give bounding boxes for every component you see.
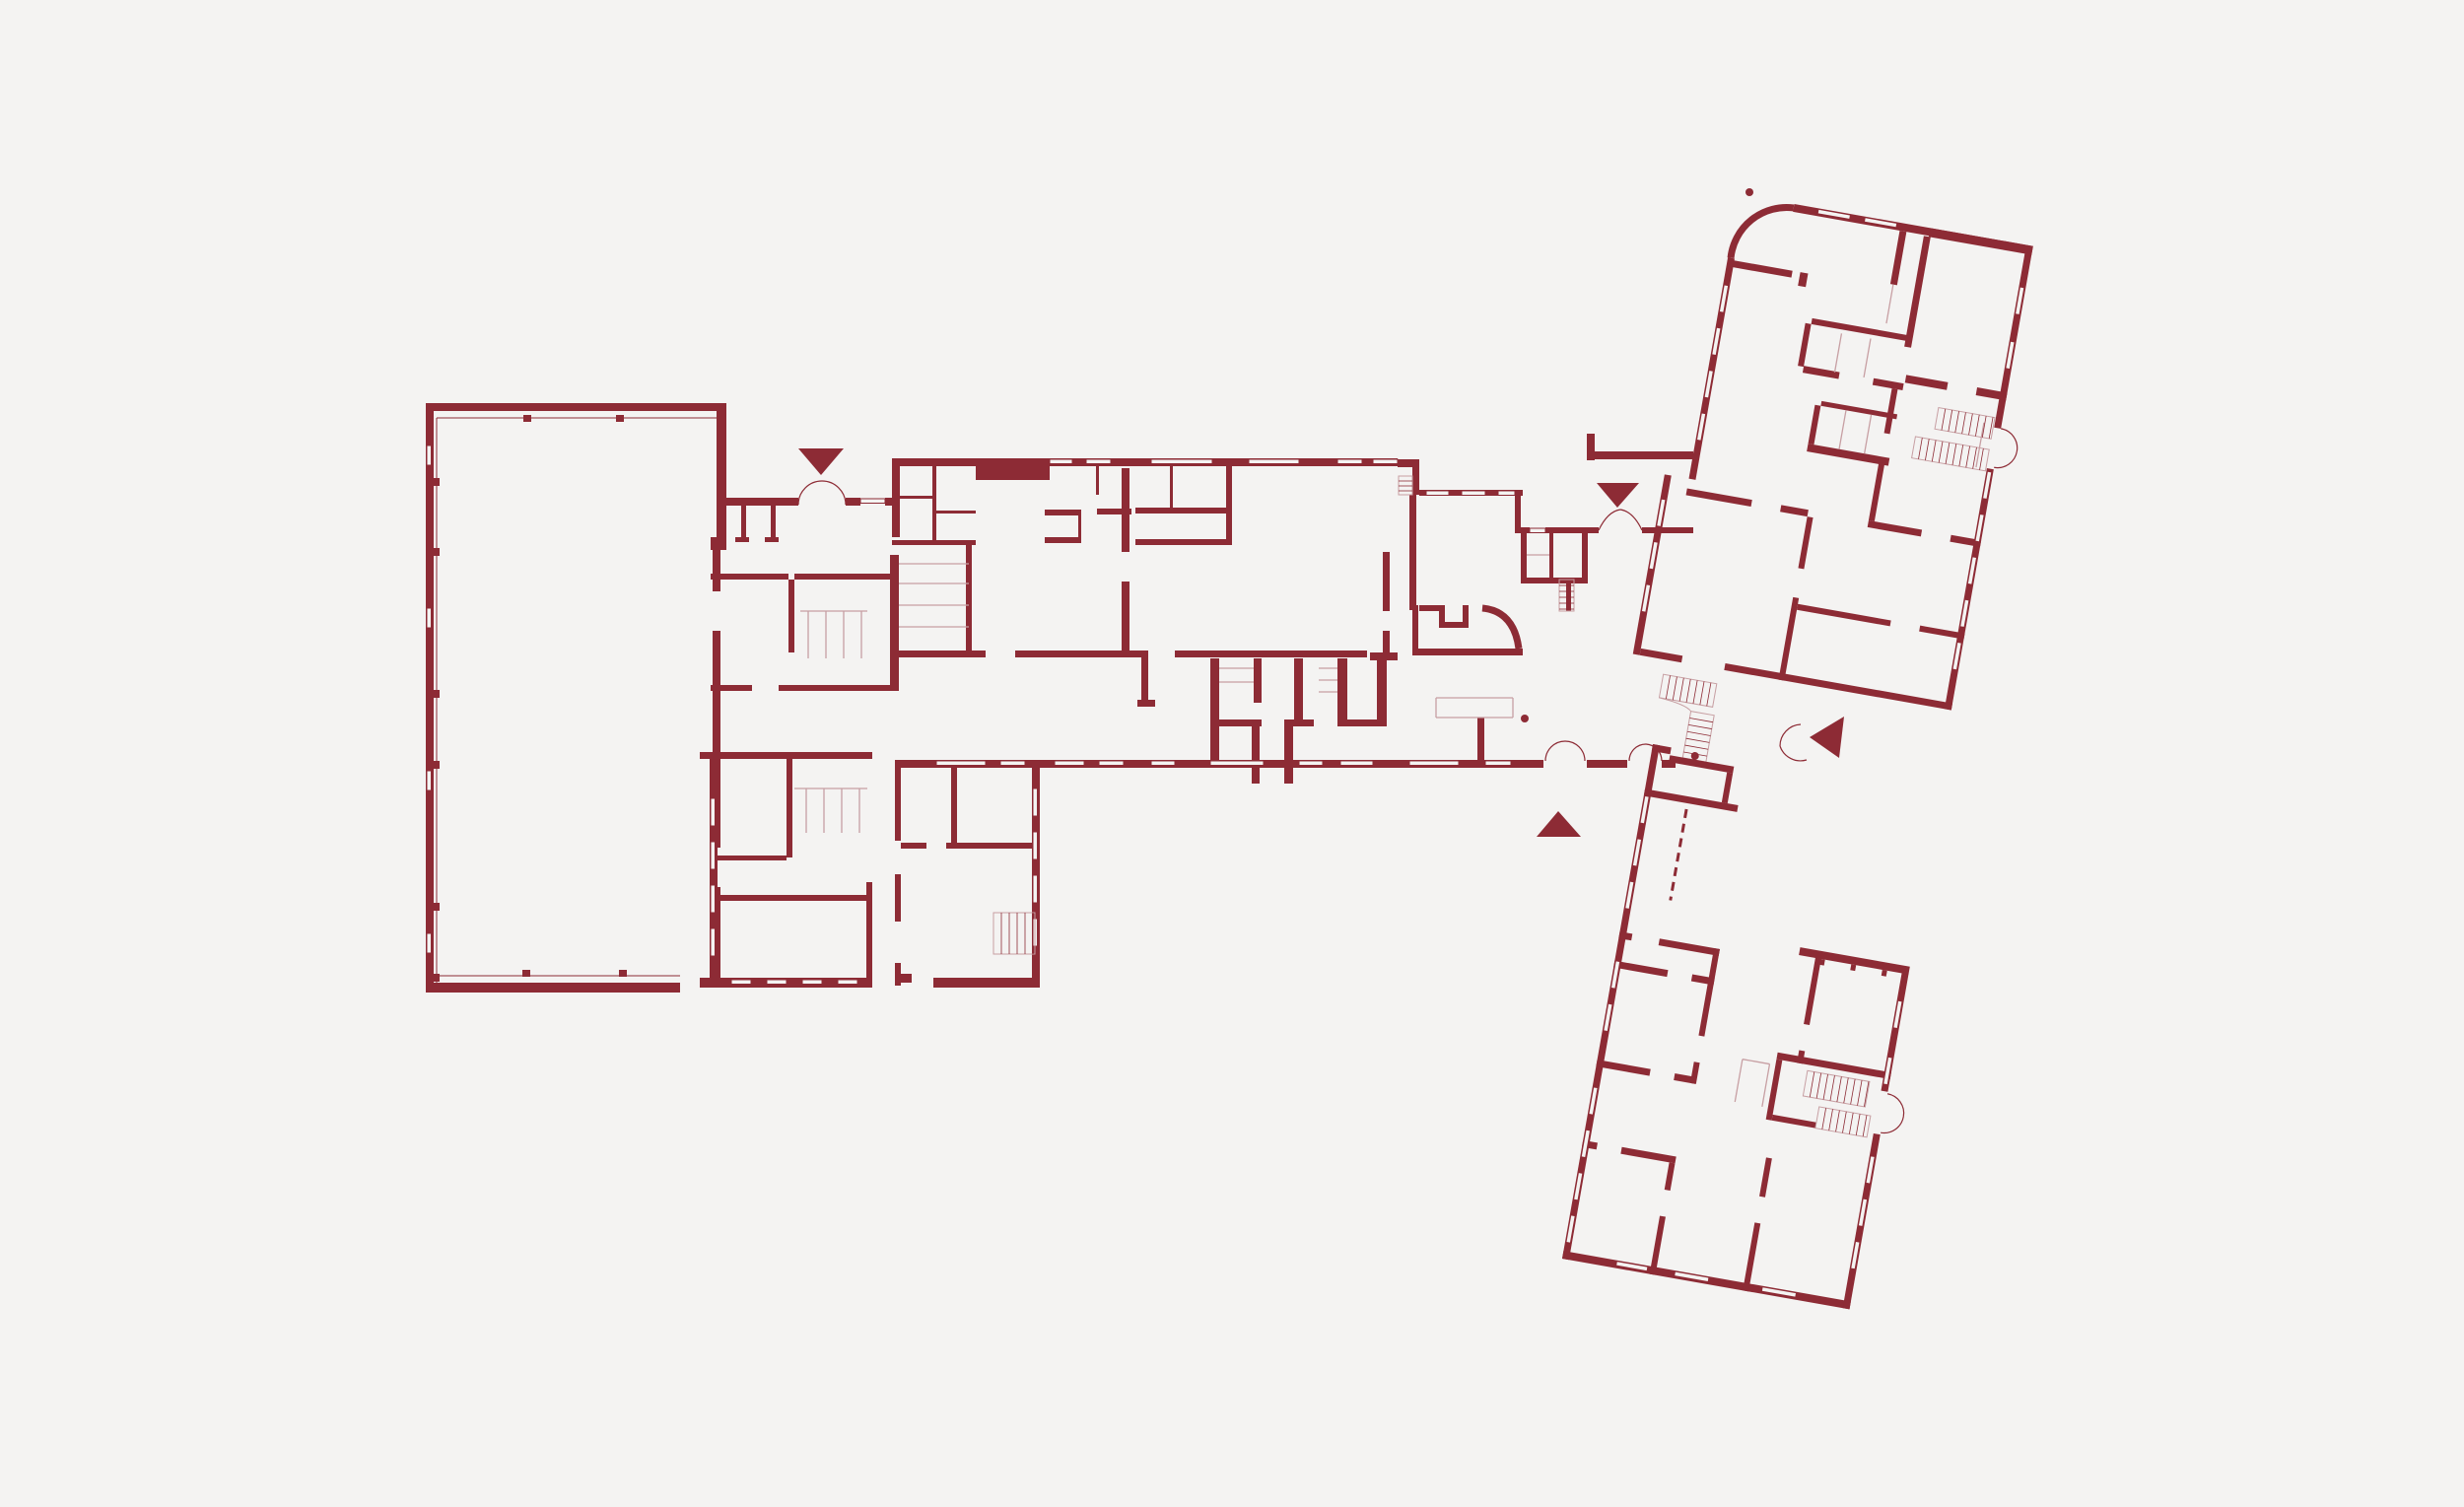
wall-segment xyxy=(1545,527,1599,533)
window-segment xyxy=(1498,491,1515,496)
window-segment xyxy=(1033,832,1038,859)
wall-segment xyxy=(1170,466,1173,508)
wall-segment xyxy=(895,974,912,983)
wall-segment xyxy=(1884,388,1898,434)
wall-segment xyxy=(1515,496,1521,533)
wall-segment xyxy=(1732,260,1792,277)
wall-segment xyxy=(426,983,680,993)
furniture-line xyxy=(1839,410,1846,448)
wall-segment xyxy=(1210,658,1219,760)
wall-segment xyxy=(1650,1162,1676,1274)
window-segment xyxy=(1249,459,1299,464)
window-segment xyxy=(711,928,716,956)
stair-hatch xyxy=(1399,476,1412,495)
furniture-line xyxy=(1865,415,1872,453)
wall-segment xyxy=(1118,509,1131,514)
door-swing xyxy=(1780,724,1801,746)
wall-segment xyxy=(711,685,752,691)
wall-segment xyxy=(717,403,726,498)
column-dot xyxy=(1521,715,1529,722)
door-opening xyxy=(1667,968,1693,983)
floor-plan-svg xyxy=(0,0,2464,1507)
door-swing xyxy=(822,481,846,505)
wall-segment xyxy=(711,574,788,580)
wall-segment xyxy=(1337,719,1387,726)
south-east-wing xyxy=(1562,744,1959,1313)
dashed-wall xyxy=(1671,809,1686,901)
stair-hatch xyxy=(1803,1070,1870,1107)
curved-wall xyxy=(1731,199,1794,267)
wall-segment xyxy=(966,545,972,651)
furniture-line xyxy=(1886,285,1893,323)
wall-segment xyxy=(1078,515,1081,537)
wall-segment xyxy=(1521,533,1527,583)
wall-segment xyxy=(1873,378,1904,390)
entrance-arrow xyxy=(798,448,844,475)
window-segment xyxy=(427,933,432,953)
wall-segment xyxy=(741,506,746,539)
wall-segment xyxy=(1642,527,1693,533)
wall-segment xyxy=(976,458,1050,480)
wall-segment xyxy=(1521,578,1588,583)
wall-segment xyxy=(936,511,976,514)
wall-segment xyxy=(1477,718,1484,761)
window-segment xyxy=(1340,761,1373,766)
door-opening xyxy=(1649,1067,1676,1082)
wall-segment xyxy=(1096,459,1099,495)
wall-segment xyxy=(1869,462,1884,521)
wall-segment xyxy=(1045,537,1081,543)
window-segment xyxy=(427,445,432,465)
wall-segment xyxy=(726,498,798,506)
entrance-arrow xyxy=(1537,811,1581,837)
window-segment xyxy=(731,980,751,985)
wall-segment xyxy=(1780,505,1809,516)
floor-plan-canvas xyxy=(0,0,2464,1507)
wall-segment xyxy=(765,537,779,542)
wall-segment xyxy=(1284,726,1293,784)
wall-segment xyxy=(1595,451,1693,459)
wall-segment xyxy=(1439,605,1445,628)
wall-segment xyxy=(866,882,872,988)
door-opening xyxy=(1681,653,1726,671)
window-segment xyxy=(1000,761,1025,766)
wall-segment xyxy=(1135,539,1232,545)
wall-segment xyxy=(892,651,986,657)
wall-segment xyxy=(1778,597,1799,681)
wall-segment xyxy=(1587,434,1595,460)
window-segment xyxy=(711,798,716,826)
window-segment xyxy=(767,980,787,985)
curved-wall xyxy=(1482,608,1519,649)
wall-segment xyxy=(787,759,792,857)
door-swing xyxy=(1780,746,1807,761)
north-east-wing xyxy=(1616,190,2052,806)
furniture-line xyxy=(1864,339,1871,377)
window-segment xyxy=(427,608,432,628)
wall-segment xyxy=(1135,508,1232,514)
wall-segment xyxy=(1045,510,1081,515)
window-segment xyxy=(427,771,432,790)
wall-segment xyxy=(715,895,872,901)
door-swing xyxy=(1599,510,1620,530)
window-segment xyxy=(936,761,986,766)
wall-segment xyxy=(1890,231,1906,285)
wall-segment xyxy=(1690,948,1720,1084)
door-swing xyxy=(1620,510,1642,530)
wall-segment xyxy=(1383,552,1390,611)
wall-segment xyxy=(1798,272,1808,287)
door-opening xyxy=(1631,931,1660,947)
wall-segment xyxy=(1137,700,1155,707)
wall-segment xyxy=(1809,405,1821,445)
wall-segment xyxy=(1686,489,1752,508)
wall-segment xyxy=(946,843,1038,849)
door-swing xyxy=(798,481,822,505)
wall-segment xyxy=(788,580,794,652)
window-segment xyxy=(1151,459,1212,464)
wall-segment xyxy=(1383,631,1390,655)
stair-hatch xyxy=(1935,408,1995,440)
wall-segment xyxy=(1412,649,1523,655)
wall-segment xyxy=(1549,533,1553,578)
window-segment xyxy=(1409,761,1459,766)
wall-segment xyxy=(1175,651,1367,657)
wall-segment xyxy=(1284,719,1314,726)
wall-segment xyxy=(1812,318,1912,342)
window-segment xyxy=(1462,491,1485,496)
wall-segment xyxy=(1743,1157,1772,1291)
wall-segment xyxy=(846,498,860,506)
wall-segment xyxy=(1210,719,1262,726)
window-segment xyxy=(1055,761,1084,766)
wall-segment xyxy=(1337,658,1347,722)
furniture-line xyxy=(1762,1064,1770,1107)
window-segment xyxy=(1033,788,1038,816)
entrance-arrow xyxy=(1810,717,1844,758)
wall-segment xyxy=(1015,651,1148,657)
stair-hatch xyxy=(1659,674,1716,707)
wall-segment xyxy=(1254,658,1262,703)
wall-segment xyxy=(1409,495,1416,610)
wall-segment xyxy=(1882,970,1887,977)
furniture-line xyxy=(1835,333,1842,372)
window-segment xyxy=(860,499,885,504)
door-opening xyxy=(1985,427,2003,469)
wall-segment xyxy=(713,550,720,591)
door-opening xyxy=(1752,1196,1767,1223)
wall-segment xyxy=(895,761,901,841)
wall-segment xyxy=(426,403,726,411)
wall-segment xyxy=(895,874,901,922)
window-segment xyxy=(1050,459,1072,464)
wall-segment xyxy=(1122,582,1129,651)
window-segment xyxy=(802,980,822,985)
door-opening xyxy=(1596,1140,1622,1155)
wall-segment xyxy=(1412,467,1419,495)
wall-segment xyxy=(1797,604,1891,627)
wall-segment xyxy=(892,540,976,545)
wall-segment xyxy=(1798,516,1813,569)
wall-segment xyxy=(1596,1060,1696,1084)
wall-segment xyxy=(1772,1115,1816,1129)
furniture-line xyxy=(1735,1060,1743,1102)
wall-segment xyxy=(1803,366,1840,378)
wall-segment xyxy=(1412,605,1418,652)
window-segment xyxy=(1530,528,1545,533)
wall-segment xyxy=(1669,755,1734,773)
wall-segment xyxy=(1398,459,1419,467)
wall-segment xyxy=(779,685,892,691)
door-opening xyxy=(1692,1035,1707,1062)
column-dot xyxy=(1745,188,1753,196)
wall-segment xyxy=(711,537,726,550)
wall-segment xyxy=(933,978,1040,988)
wall-segment xyxy=(771,506,776,539)
wall-segment xyxy=(1904,236,1931,347)
wall-segment xyxy=(1521,527,1530,533)
wall-segment xyxy=(1722,773,1733,804)
wall-segment xyxy=(901,843,926,849)
wall-segment xyxy=(1226,466,1232,545)
wall-segment xyxy=(1141,657,1148,702)
wall-segment xyxy=(1252,726,1260,784)
wall-segment xyxy=(794,574,892,580)
entrance-arrow xyxy=(1597,483,1639,508)
wall-segment xyxy=(1850,964,1856,971)
window-segment xyxy=(711,842,716,869)
window-segment xyxy=(1086,459,1111,464)
wall-segment xyxy=(1929,228,2033,254)
wall-segment xyxy=(892,496,932,499)
furniture-line xyxy=(1743,1060,1770,1064)
stair-hatch xyxy=(993,913,1035,954)
wall-segment xyxy=(1905,375,1949,389)
window-segment xyxy=(1426,491,1449,496)
stair-hatch xyxy=(1912,437,1990,471)
wall-segment xyxy=(1868,520,1922,536)
wall-segment xyxy=(735,537,749,542)
wall-segment xyxy=(1582,533,1588,583)
door-opening xyxy=(1797,1024,1812,1052)
wall-segment xyxy=(1919,626,1964,640)
wall-segment xyxy=(715,856,787,860)
window-segment xyxy=(1033,875,1038,903)
wall-segment xyxy=(1798,323,1812,367)
window-segment xyxy=(1099,761,1124,766)
window-segment xyxy=(1210,761,1264,766)
wall-segment xyxy=(426,403,434,993)
door-opening xyxy=(1658,1190,1673,1217)
window-segment xyxy=(1299,761,1323,766)
window-segment xyxy=(1337,459,1362,464)
wall-segment xyxy=(932,466,936,540)
window-segment xyxy=(711,885,716,913)
window-segment xyxy=(1373,459,1398,464)
wall-segment xyxy=(1613,961,1715,986)
window-segment xyxy=(838,980,857,985)
door-opening xyxy=(1872,1090,1889,1134)
window-segment xyxy=(1485,761,1511,766)
wall-segment xyxy=(1463,605,1469,625)
wall-segment xyxy=(1820,401,1897,419)
wall-segment xyxy=(1294,658,1303,722)
wall-segment xyxy=(1807,444,1889,465)
wall-segment xyxy=(1582,1140,1677,1164)
stair-hatch xyxy=(1815,1107,1871,1137)
wall-segment xyxy=(700,752,872,759)
window-segment xyxy=(1151,761,1175,766)
door-opening xyxy=(1543,757,1587,770)
wall-segment xyxy=(951,761,957,848)
wall-segment xyxy=(1377,657,1387,726)
furniture-line xyxy=(1976,423,1984,467)
